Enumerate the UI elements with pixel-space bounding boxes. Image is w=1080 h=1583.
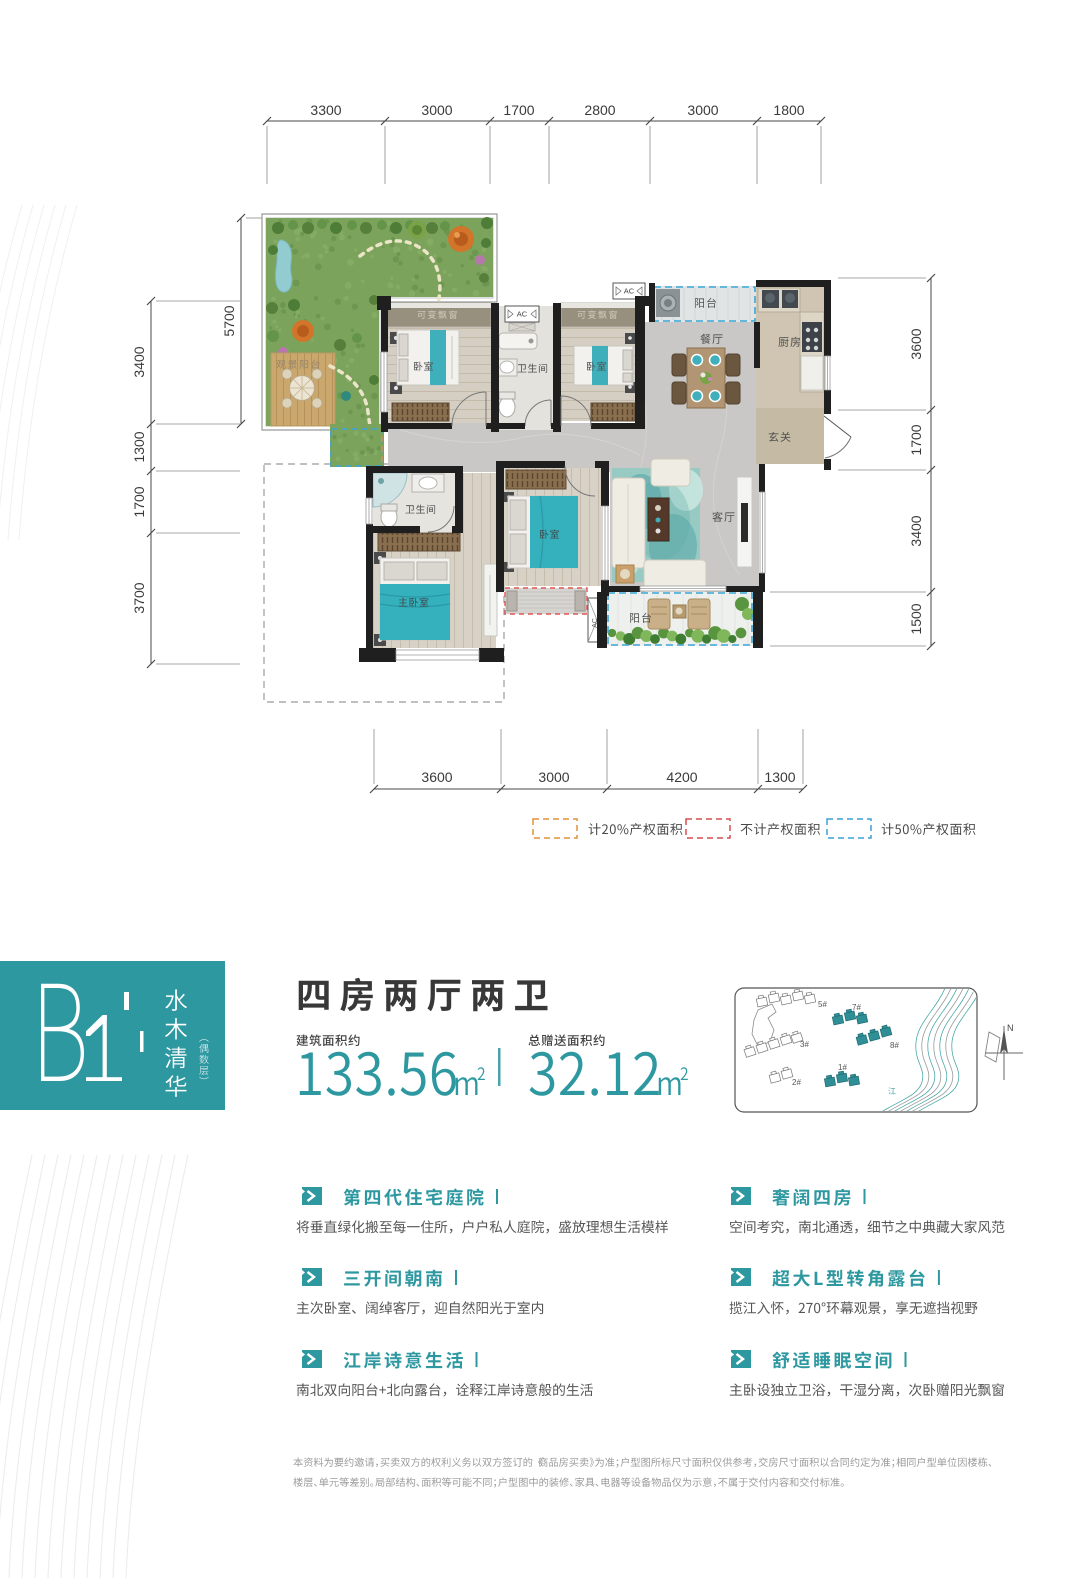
svg-text:1700: 1700 [131, 486, 147, 517]
svg-text:3000: 3000 [687, 102, 718, 118]
svg-text:AC: AC [517, 310, 528, 319]
svg-text:3000: 3000 [421, 102, 452, 118]
svg-text:1#: 1# [838, 1063, 847, 1072]
svg-text:4200: 4200 [666, 769, 697, 785]
svg-text:1700: 1700 [908, 424, 924, 455]
svg-text:5#: 5# [818, 1000, 827, 1009]
svg-text:1800: 1800 [773, 102, 804, 118]
svg-text:AC: AC [624, 287, 635, 296]
svg-text:3700: 3700 [131, 582, 147, 613]
svg-text:3400: 3400 [908, 515, 924, 546]
svg-text:2#: 2# [792, 1078, 801, 1087]
svg-text:7#: 7# [852, 1003, 861, 1012]
svg-text:2800: 2800 [584, 102, 615, 118]
svg-text:3#: 3# [800, 1040, 809, 1049]
svg-text:1300: 1300 [131, 431, 147, 462]
svg-text:1700: 1700 [503, 102, 534, 118]
svg-text:1300: 1300 [764, 769, 795, 785]
svg-text:3000: 3000 [538, 769, 569, 785]
svg-text:N: N [1007, 1023, 1014, 1033]
svg-text:8#: 8# [890, 1041, 899, 1050]
svg-text:3600: 3600 [908, 328, 924, 359]
svg-text:3400: 3400 [131, 346, 147, 377]
svg-text:1500: 1500 [908, 603, 924, 634]
svg-text:3300: 3300 [310, 102, 341, 118]
svg-text:5700: 5700 [221, 305, 237, 336]
svg-text:3600: 3600 [421, 769, 452, 785]
